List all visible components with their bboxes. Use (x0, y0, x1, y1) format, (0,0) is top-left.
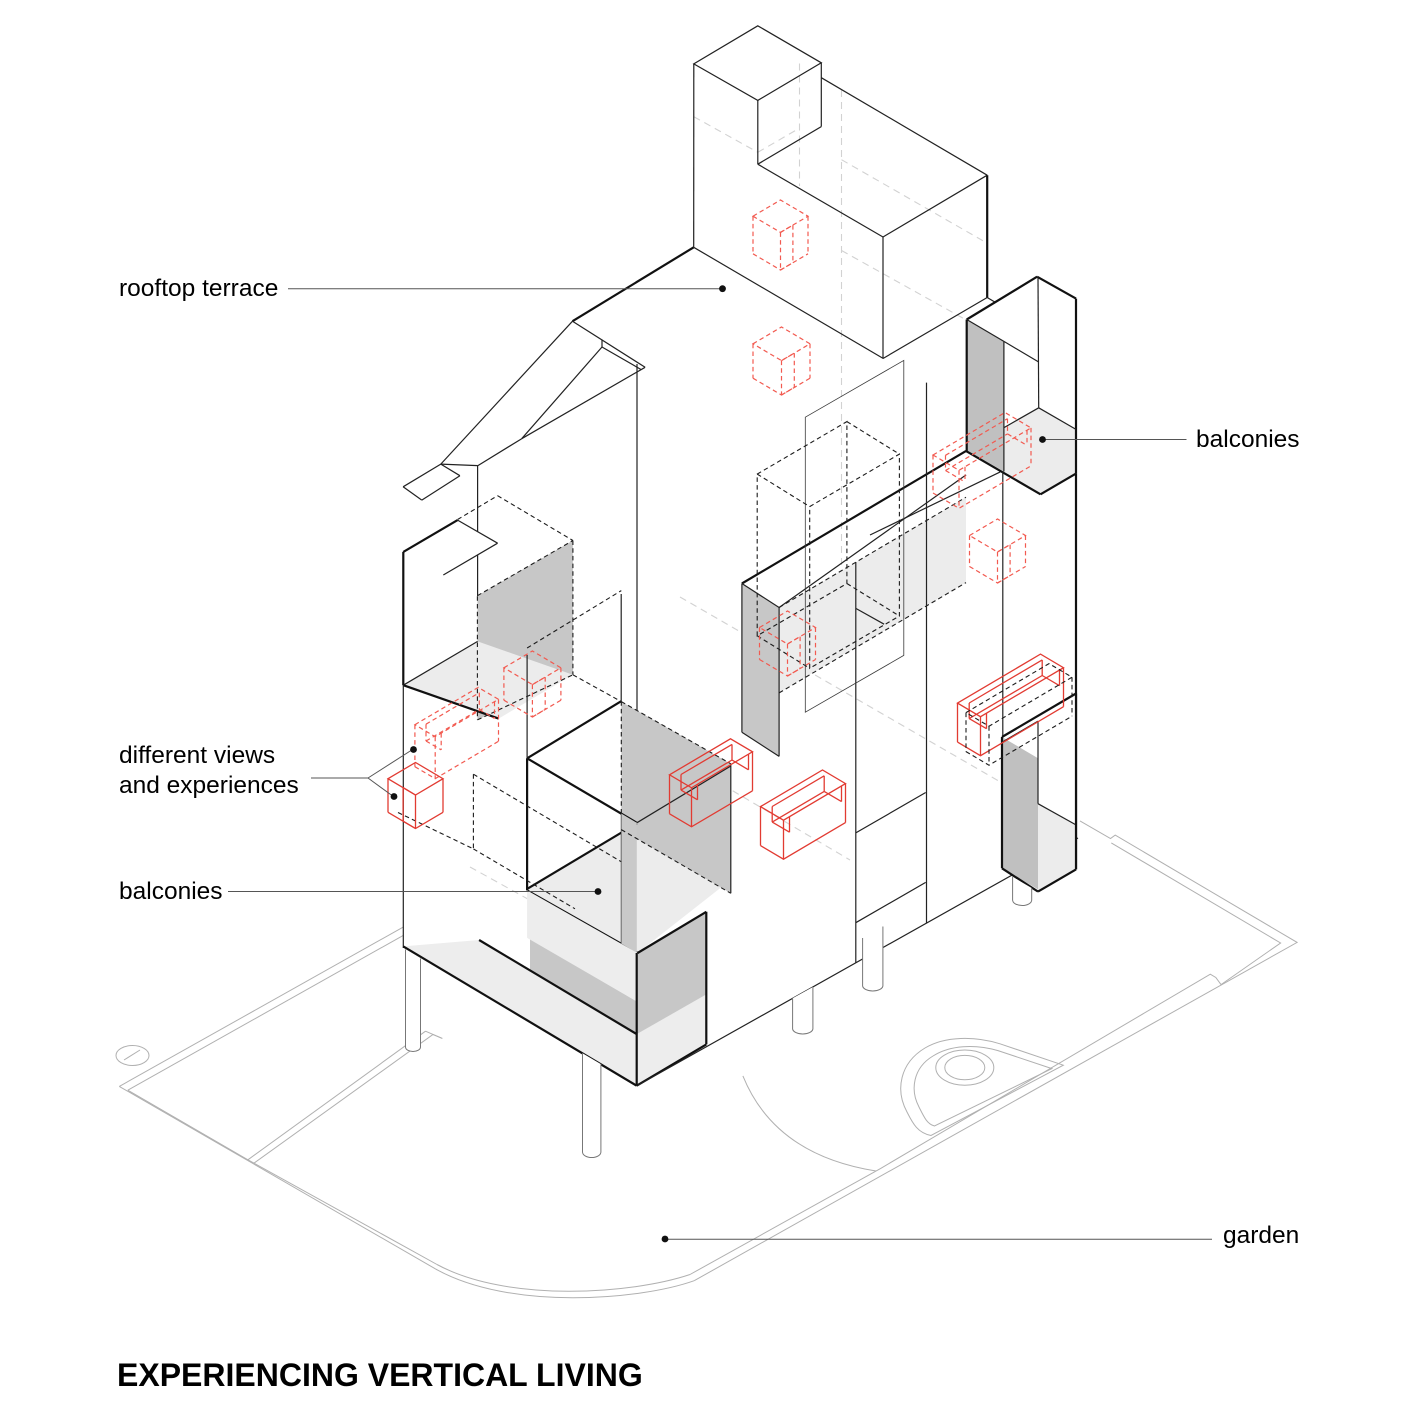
svg-text:different views: different views (119, 742, 275, 769)
svg-text:rooftop terrace: rooftop terrace (119, 275, 278, 302)
svg-text:balconies: balconies (119, 878, 223, 905)
svg-text:garden: garden (1223, 1222, 1299, 1249)
svg-text:EXPERIENCING VERTICAL LIVING: EXPERIENCING VERTICAL LIVING (117, 1357, 643, 1393)
svg-text:balconies: balconies (1196, 426, 1300, 453)
svg-text:and experiences: and experiences (119, 772, 299, 799)
